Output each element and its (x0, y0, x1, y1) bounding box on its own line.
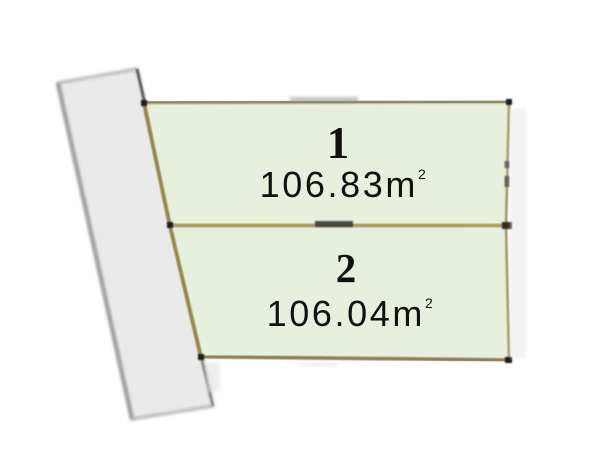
svg-text:106.04m2: 106.04m2 (267, 293, 436, 334)
svg-text:2: 2 (336, 245, 357, 291)
svg-text:106.83m2: 106.83m2 (260, 164, 429, 205)
svg-text:1: 1 (327, 118, 350, 168)
